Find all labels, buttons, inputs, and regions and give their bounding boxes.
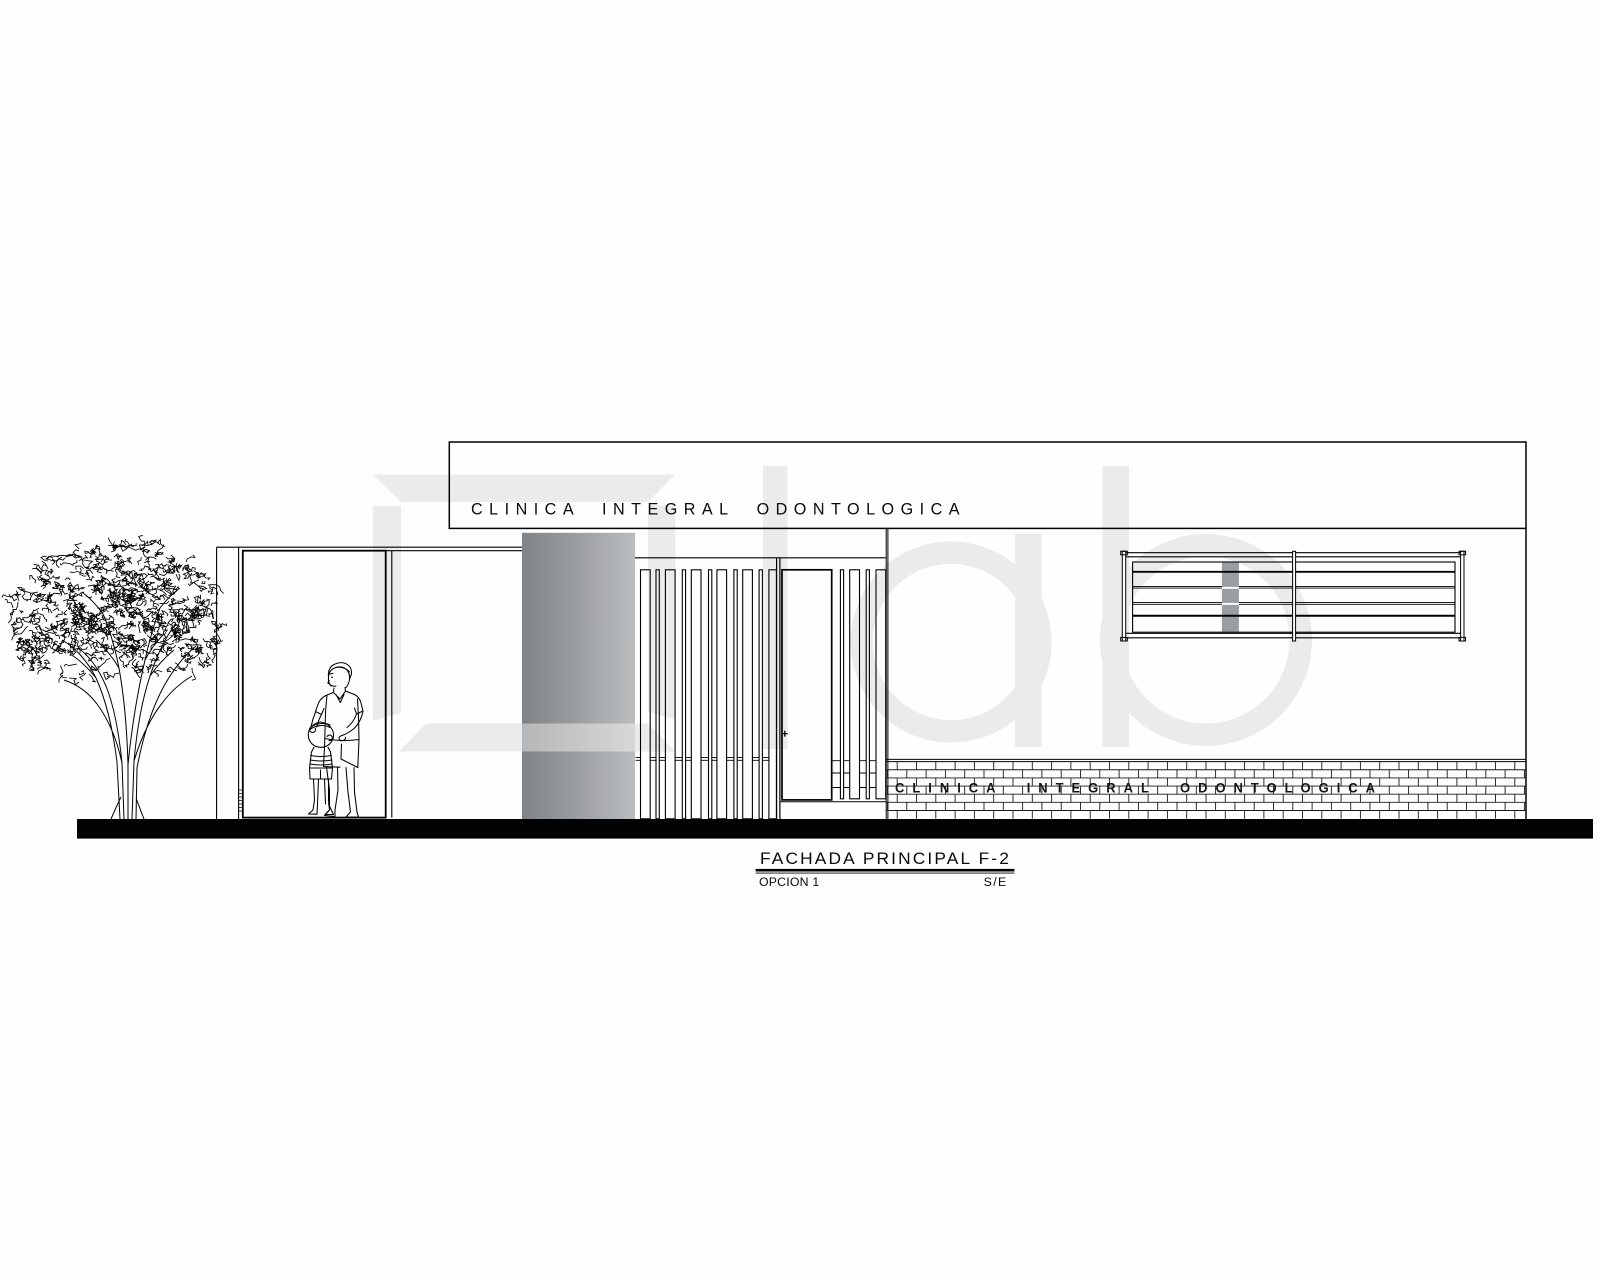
- svg-text:S/E: S/E: [984, 875, 1008, 889]
- svg-text:CLINICA INTEGRAL ODONTOLOGIC: CLINICA INTEGRAL ODONTOLOGICA: [471, 500, 966, 519]
- svg-text:OPCION 1: OPCION 1: [759, 875, 819, 889]
- svg-text:FACHADA PRINCIPAL F-2: FACHADA PRINCIPAL F-2: [760, 850, 1011, 868]
- svg-text:CLINICA INTEGRAL ODONTOLOGIC: CLINICA INTEGRAL ODONTOLOGICA: [895, 780, 1383, 795]
